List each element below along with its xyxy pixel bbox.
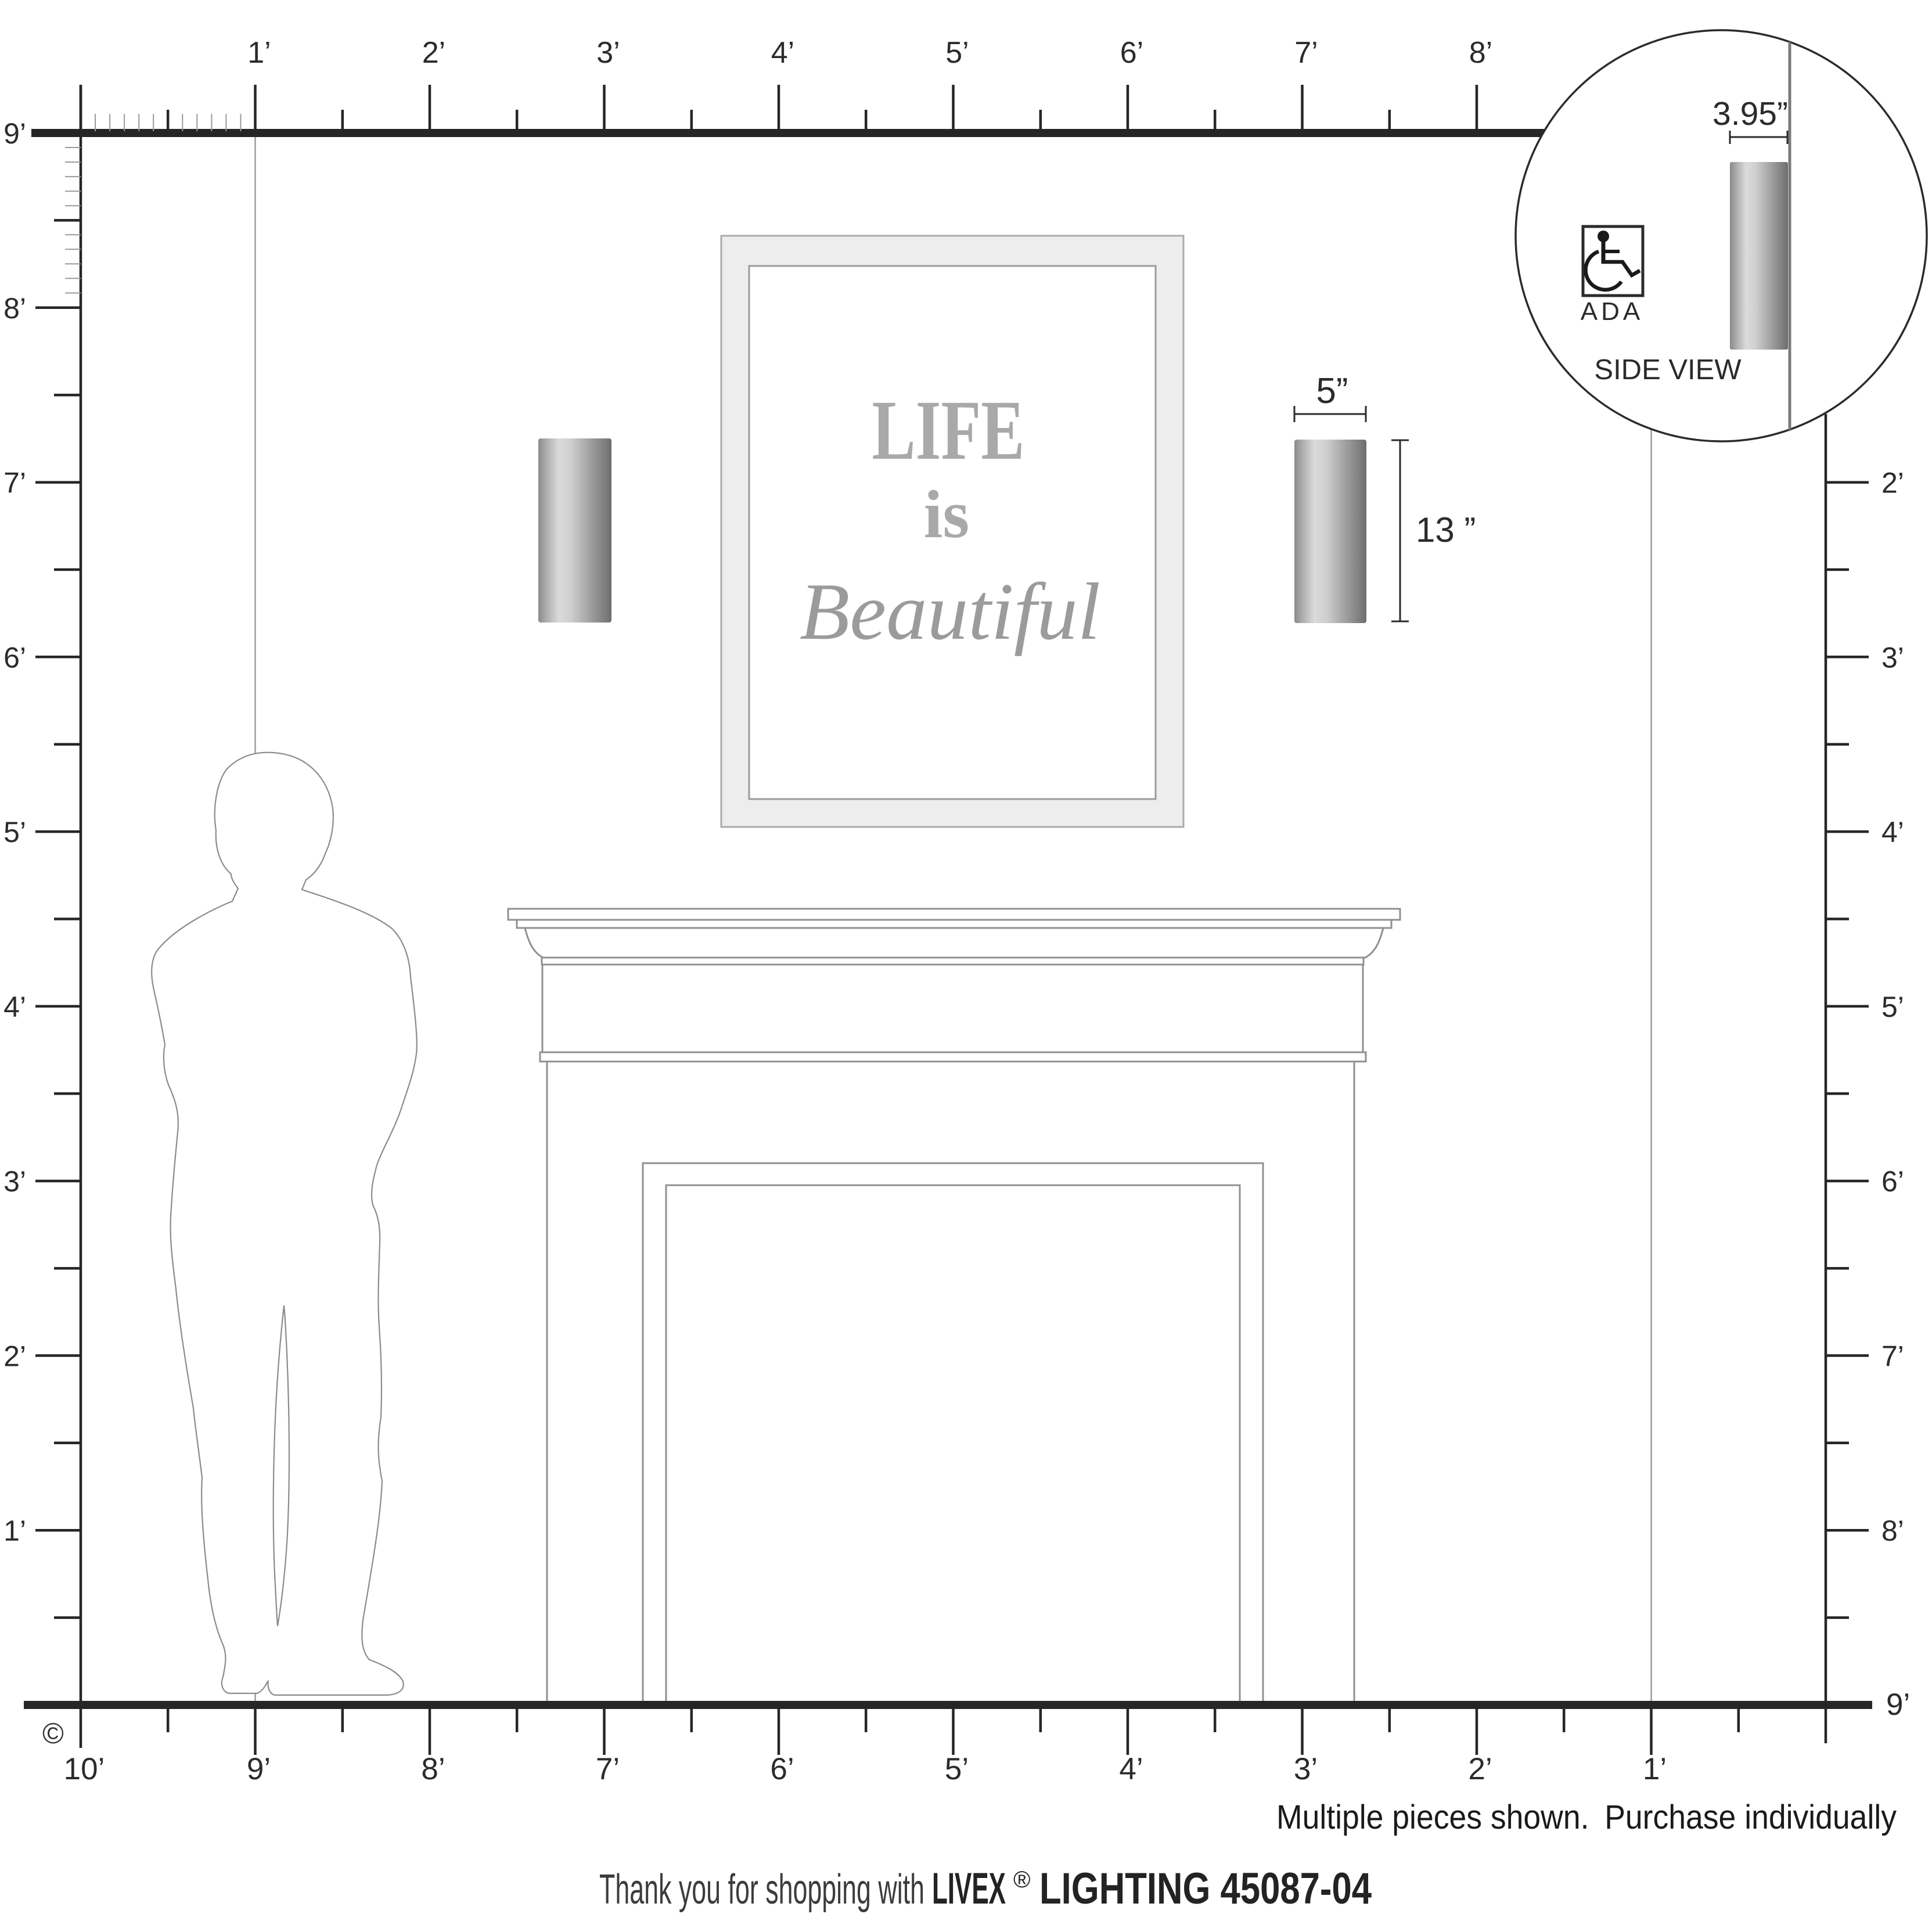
svg-text:13 ”: 13 ”	[1416, 510, 1476, 549]
svg-text:1’: 1’	[1643, 1752, 1667, 1786]
svg-text:6’: 6’	[3, 641, 26, 674]
svg-text:3’: 3’	[1294, 1752, 1318, 1786]
svg-text:Beautiful: Beautiful	[800, 567, 1100, 657]
svg-text:LIFE: LIFE	[872, 383, 1025, 477]
svg-text:7’: 7’	[3, 467, 26, 499]
svg-text:is: is	[924, 476, 970, 552]
svg-text:3’: 3’	[1881, 641, 1904, 674]
svg-text:2’: 2’	[422, 36, 445, 70]
svg-text:9’: 9’	[3, 117, 26, 150]
svg-text:6’: 6’	[1120, 36, 1143, 70]
svg-text:3.95”: 3.95”	[1712, 95, 1788, 132]
svg-text:1’: 1’	[247, 36, 271, 70]
svg-text:5’: 5’	[1881, 991, 1904, 1023]
svg-text:4’: 4’	[1881, 816, 1904, 848]
svg-text:7’: 7’	[596, 1752, 620, 1786]
svg-text:7’: 7’	[1881, 1340, 1904, 1372]
svg-text:Thank you for shopping with: Thank you for shopping with	[599, 1866, 924, 1913]
svg-text:8’: 8’	[1469, 36, 1492, 70]
svg-text:7’: 7’	[1294, 36, 1318, 70]
svg-text:3’: 3’	[596, 36, 620, 70]
svg-text:LIGHTING 45087-04: LIGHTING 45087-04	[1039, 1864, 1372, 1913]
svg-text:LIVEX: LIVEX	[932, 1864, 1006, 1913]
svg-text:9’: 9’	[1886, 1688, 1910, 1722]
svg-text:4’: 4’	[3, 991, 26, 1023]
svg-text:8’: 8’	[1881, 1514, 1904, 1547]
svg-text:9’: 9’	[247, 1752, 271, 1786]
svg-text:©: ©	[42, 1717, 64, 1750]
svg-text:2’: 2’	[1468, 1752, 1492, 1786]
svg-text:1’: 1’	[3, 1514, 26, 1547]
svg-text:5’: 5’	[945, 1752, 969, 1786]
svg-text:5”: 5”	[1316, 371, 1348, 411]
svg-text:8’: 8’	[421, 1752, 445, 1786]
svg-text:2’: 2’	[3, 1340, 26, 1372]
svg-text:10’: 10’	[64, 1752, 105, 1786]
svg-text:5’: 5’	[945, 36, 969, 70]
svg-text:4’: 4’	[1119, 1752, 1143, 1786]
svg-text:6’: 6’	[1881, 1165, 1904, 1198]
svg-text:4’: 4’	[771, 36, 794, 70]
svg-text:5’: 5’	[3, 816, 26, 848]
svg-text:2’: 2’	[1881, 467, 1904, 499]
svg-text:SIDE VIEW: SIDE VIEW	[1594, 354, 1742, 386]
svg-text:®: ®	[1013, 1867, 1030, 1893]
svg-text:ADA: ADA	[1581, 297, 1643, 326]
svg-text:Multiple pieces shown. Purchas: Multiple pieces shown. Purchase individu…	[1276, 1798, 1897, 1836]
svg-text:3’: 3’	[3, 1165, 26, 1198]
svg-text:8’: 8’	[3, 292, 26, 325]
svg-text:6’: 6’	[770, 1752, 794, 1786]
